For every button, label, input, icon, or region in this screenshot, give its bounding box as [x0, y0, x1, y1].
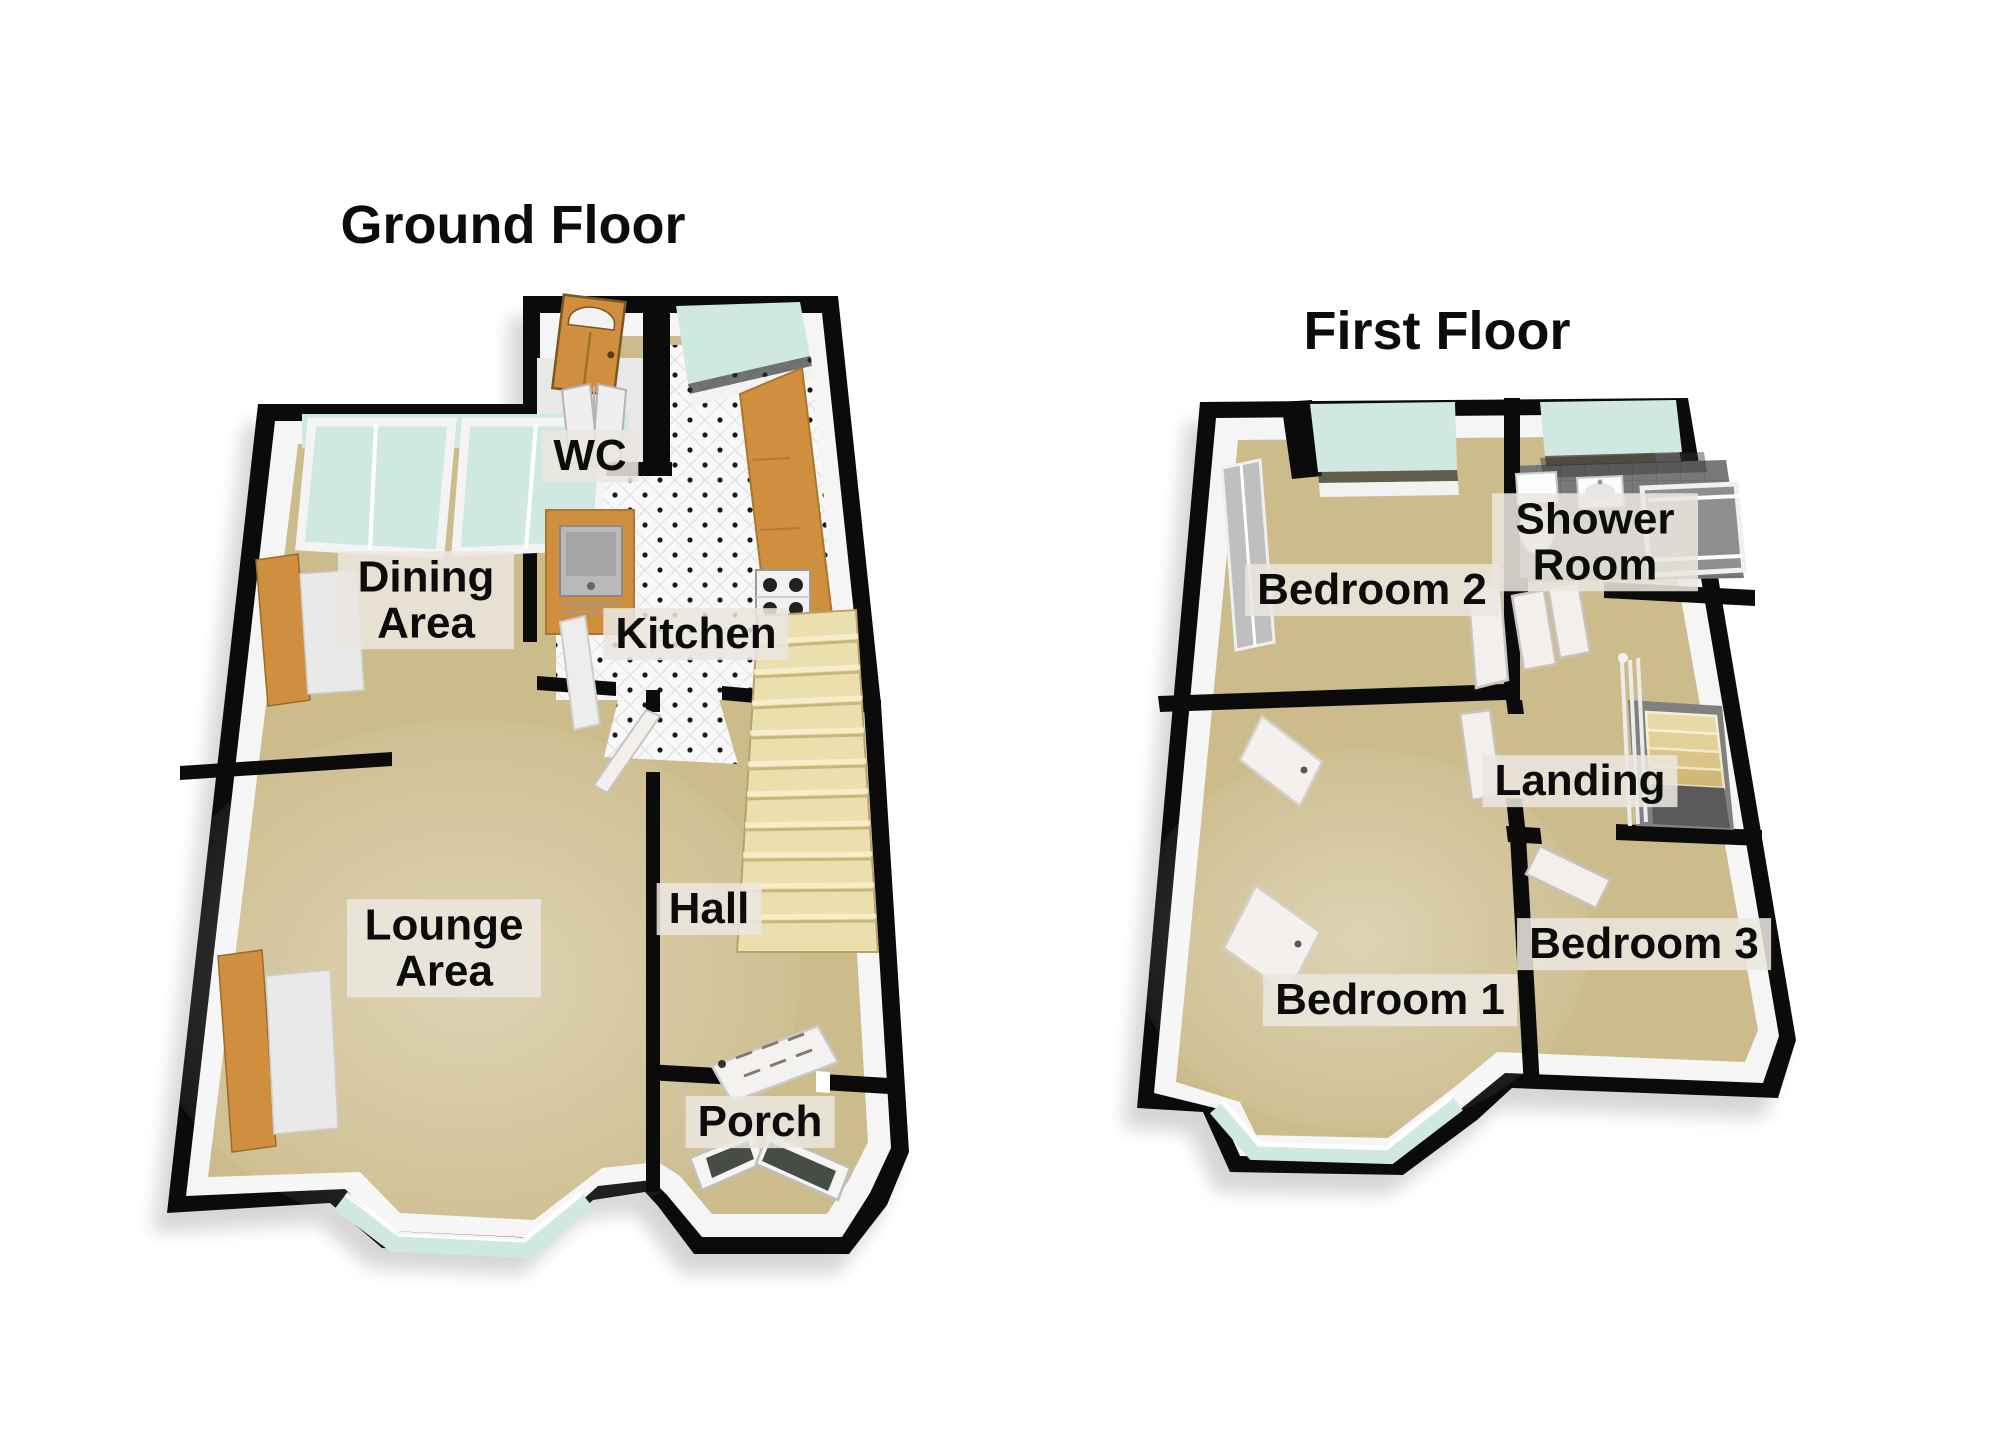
room-label-porch: Porch	[686, 1096, 835, 1148]
bedroom2-window	[1310, 402, 1459, 497]
lounge-unit	[218, 950, 338, 1152]
room-label-dining-area: Dining Area	[338, 551, 514, 649]
floorplan-drawing	[0, 0, 2000, 1454]
ground-floor-title: Ground Floor	[341, 197, 686, 253]
floorplan-page: Ground Floor First Floor Dining Area WC …	[0, 0, 2000, 1454]
room-label-bedroom-2: Bedroom 2	[1245, 564, 1499, 616]
room-label-lounge-area: Lounge Area	[347, 899, 541, 997]
room-label-bedroom-1: Bedroom 1	[1263, 974, 1517, 1026]
room-label-shower-room: Shower Room	[1492, 493, 1698, 591]
first-floor-title: First Floor	[1304, 303, 1571, 359]
room-label-bedroom-3: Bedroom 3	[1517, 918, 1771, 970]
room-label-landing: Landing	[1482, 755, 1677, 807]
room-label-wc: WC	[541, 430, 638, 482]
front-door	[552, 295, 625, 396]
room-label-kitchen: Kitchen	[603, 608, 788, 660]
newel-post	[1618, 653, 1628, 663]
room-label-hall: Hall	[657, 883, 762, 935]
shower-window	[1540, 400, 1683, 466]
